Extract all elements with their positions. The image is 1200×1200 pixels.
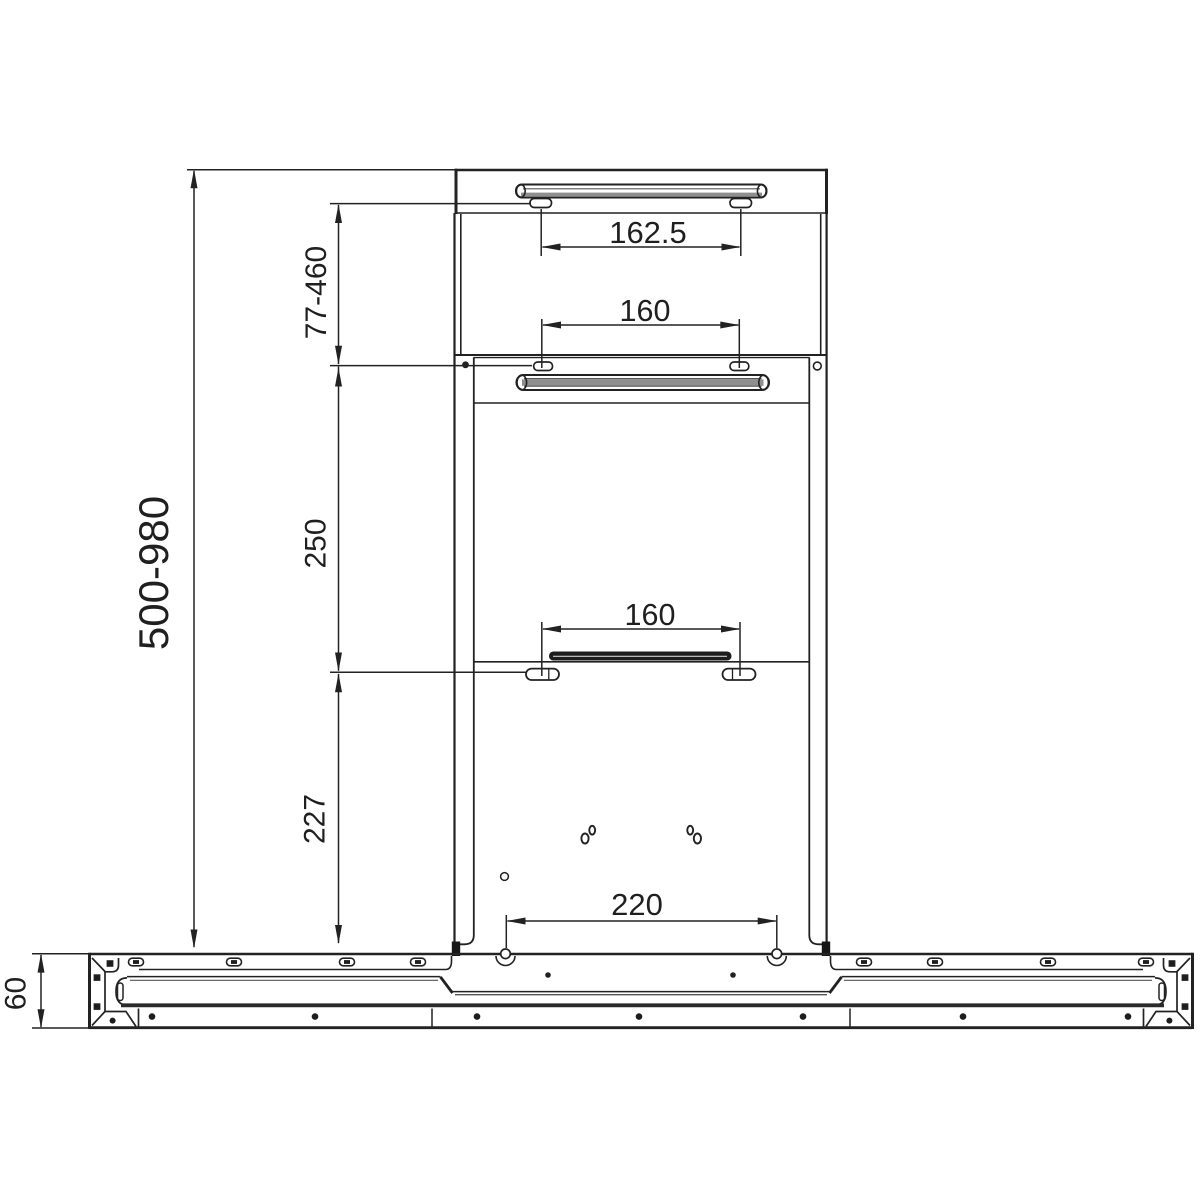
svg-text:60: 60 [0, 977, 33, 1010]
svg-text:77-460: 77-460 [300, 246, 333, 339]
svg-text:160: 160 [625, 598, 676, 632]
svg-text:250: 250 [300, 518, 333, 568]
svg-text:227: 227 [299, 794, 332, 844]
svg-text:220: 220 [611, 887, 663, 922]
svg-text:162.5: 162.5 [609, 215, 687, 250]
svg-text:500-980: 500-980 [130, 496, 177, 650]
svg-text:160: 160 [620, 294, 671, 328]
